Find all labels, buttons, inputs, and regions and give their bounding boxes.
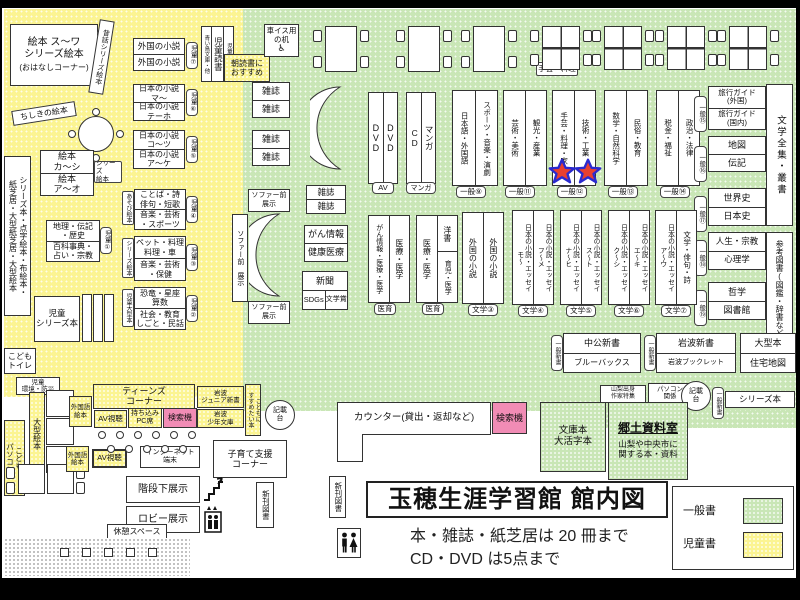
legend-row-general: 一般書 (683, 498, 783, 524)
seat-circle (179, 445, 187, 453)
shelf-badge: 児童⑦ (186, 42, 198, 69)
shelf-unit (104, 294, 114, 342)
foreign-novels-shelf: 外国の小説 外国の小説 (462, 212, 504, 304)
shelf-children-5: 日本の小説 コ〜ツ 日本の小説 ア〜ケ (133, 130, 185, 169)
shelf-label: 音楽・芸術 ・保健 (135, 258, 185, 280)
sofa-crescent (310, 84, 360, 174)
shelf-label: 絵本 ア〜オ (41, 173, 93, 196)
shelf-tag: シリーズ絵本 (122, 238, 134, 278)
stool (104, 548, 113, 557)
chair (508, 56, 517, 68)
shelf-badge: 一般⑨ (456, 186, 486, 198)
shelf-label: 日本の小説 テーホ (134, 102, 184, 120)
search-terminal: 検索機 (492, 402, 527, 434)
sdgs-row: SDGs文学賞 (303, 290, 347, 309)
legend: 一般書 児童書 (672, 486, 794, 570)
reading-table (473, 26, 505, 72)
japanese-novels-shelf-6: 日本の小説・エッセイ ク〜シ 日本の小説・エッセイ エ〜キ (608, 210, 650, 305)
childcare-support-corner: 子育て支援 コーナー (213, 440, 287, 478)
shelf-badge: 児童① (100, 227, 112, 254)
shelf-label: 民俗・教育 (626, 91, 648, 185)
chair (717, 54, 726, 66)
chair (530, 54, 539, 66)
service-counter-leg (337, 434, 363, 462)
shelf-badge: 児童⑤ (186, 136, 198, 163)
shelf-children-6: 日本の小説 マ〜 日本の小説 テーホ (133, 84, 185, 121)
wheelchair-desk-label: 車イス用 の机 (267, 27, 297, 44)
reading-table (325, 26, 357, 72)
search-terminal: 検索機 (163, 408, 197, 428)
rest-space-floor (4, 538, 190, 576)
av-seat: AV視聴 (94, 410, 127, 428)
shelf-label: 日本の小説・エッセイ ク〜シ (609, 211, 629, 304)
chair (76, 482, 85, 494)
shelf-label: 観光・産業 (525, 91, 547, 185)
shelf-subcolumn: 洋書 育児・医学 (437, 216, 458, 302)
magazine-label: 雑誌 (253, 83, 289, 100)
magazine-label: 雑誌 (253, 148, 289, 166)
magazine-rack: 雑誌 雑誌 (306, 185, 346, 214)
shelf-label: 中公新書 (564, 334, 640, 353)
magazine-rack: 雑誌 雑誌 (252, 130, 290, 166)
shelf-label: 文学・俳句・詩 (676, 211, 697, 304)
foreign-picture-books: 外国語 絵本 (66, 446, 89, 472)
shelf-badge: 児童⑥ (186, 89, 198, 116)
seat-circle (98, 431, 106, 439)
sdgs-label: SDGs (303, 291, 326, 309)
local-materials-room-desc: 山梨や中央市に 関する本・資料 (618, 440, 678, 460)
new-books-shelf: 新刊図書 (329, 476, 346, 518)
local-materials-room-title: 郷土資料室 (618, 422, 678, 436)
shelf-badge: 文学⑦ (661, 305, 691, 317)
magazine-label: 雑誌 (307, 199, 345, 213)
shelf-badge: 児童③ (186, 244, 198, 271)
shelf-label: がん情報・医療・医学 (369, 216, 389, 302)
sofa-front-display-strip: ソファー前 展示 (232, 214, 248, 302)
reading-table (604, 26, 642, 70)
shelf-label: 音楽・芸術 ・スポーツ (135, 209, 185, 229)
shelf-badge: 一般新書 (712, 387, 724, 419)
chair (396, 56, 405, 68)
bunko-large-print-shelf: 文庫本 大活字本 (540, 402, 606, 472)
shelf-children-7: 外国の小説 外国の小説 (133, 38, 185, 71)
shelf-label: 日本史 (709, 207, 765, 226)
shelf-tag: 児童大型本 (122, 289, 134, 327)
chair (655, 54, 664, 66)
shelf-label: ことば・詩 俳句・短歌 (135, 190, 185, 209)
elevator-icon (204, 504, 222, 534)
chair (708, 54, 717, 66)
chair (508, 30, 517, 42)
chair (360, 30, 369, 42)
cd-manga-shelf: CD マンガ (406, 92, 436, 184)
seat-circle (116, 431, 124, 439)
general-shelf-11: 芸術・美術 観光・産業 (503, 90, 547, 186)
shelf-children-3: ペット・料理 料理・車 音楽・芸術 ・保健 (134, 236, 186, 281)
shelf-badge: 児童④ (186, 196, 198, 223)
sofa-crescent (249, 210, 299, 302)
shelf-badge: 一般⑯ (694, 146, 707, 182)
chuko-shinsho-shelf: 中公新書 ブルーバックス (563, 333, 641, 373)
chair (396, 30, 405, 42)
shelf-label: ブルーバックス (564, 353, 640, 373)
legend-children-label: 児童書 (683, 538, 716, 551)
shelf-label: CD (407, 93, 421, 183)
stool (126, 548, 135, 557)
chair (717, 30, 726, 42)
chair (592, 54, 601, 66)
chair (708, 30, 717, 42)
shelf-label: 地図 (709, 137, 765, 154)
children-reading-label: 児童読書 (212, 27, 225, 81)
kids-toilet: こども トイレ (4, 348, 36, 374)
literary-award-label: 文学賞 (326, 291, 348, 309)
chair (645, 30, 654, 42)
shelf-label: 医療・医学 (389, 216, 410, 302)
medical-shelf-2: 医療・医学 洋書 育児・医学 (416, 215, 458, 303)
shelf-label: 伝記 (709, 154, 765, 172)
shelf-badge: AV (372, 182, 394, 194)
shelf-label: 図書館 (709, 301, 765, 320)
large-books-shelf: 大型本 住宅地図 (740, 333, 796, 373)
shelf-label: 日本の小説 コ〜ツ (134, 131, 184, 149)
shelf-label: DVD (369, 93, 383, 183)
map-biography-shelf: 地図 伝記 (708, 136, 766, 172)
reading-table (18, 464, 45, 494)
shelf-badge: 一般新書 (551, 335, 563, 371)
morning-reading-recommend-display: 朝読書に おすすめ (224, 54, 270, 82)
shelf-badge: 一般⑮ (694, 96, 707, 132)
seat-circle (170, 431, 178, 439)
chair (583, 30, 592, 42)
aoitori-bunko-label: 青い鳥文庫・他 (202, 27, 212, 81)
teens-corner: ティーンズ コーナー (93, 384, 195, 409)
under-stairs-display: 階段下展示 (126, 476, 200, 503)
series-braille-big-books-shelf: シリーズ本・点字絵本・布絵本・ 紙芝居・大型紙芝居・大型絵本 (4, 156, 31, 316)
shelf-label: 洋書 (438, 216, 458, 252)
shelf-badge: 医育 (374, 303, 396, 315)
newspaper-label: 新聞 (303, 272, 347, 290)
local-materials-room: 郷土資料室 山梨や中央市に 関する本・資料 (608, 402, 688, 480)
stairs-icon (202, 474, 224, 502)
chair (770, 30, 779, 42)
magazine-rack: 雑誌 雑誌 (252, 82, 290, 118)
chair (68, 130, 76, 138)
shelf-label: ペット・料理 料理・車 (135, 237, 185, 258)
shelf-label: がん情報 (305, 226, 347, 243)
chair (116, 130, 124, 138)
chair (313, 56, 322, 68)
byod-pc-seat: 持ち込み PC席 (128, 408, 162, 428)
map-title: 玉穂生涯学習館 館内図 (366, 481, 668, 518)
reading-table (667, 26, 705, 70)
philosophy-shelf: 哲学 図書館 (708, 282, 766, 320)
shelf-tag: シリーズ 絵本 (94, 161, 122, 183)
toilet-icon (339, 531, 359, 555)
shelf-label: 医療・医学 (417, 216, 437, 302)
shelf-label: 育児・医学 (438, 252, 458, 302)
shelf-label: 外国の小説 (134, 39, 184, 54)
shelf-label: 心理学 (709, 251, 765, 270)
seat-circle (188, 431, 196, 439)
cancer-info-health-shelf: がん情報 健康医療 (304, 225, 348, 262)
reading-table (542, 26, 580, 70)
shelf-label: 岩波ブックレット (657, 353, 735, 373)
medical-shelf-1: がん情報・医療・医学 医療・医学 (368, 215, 410, 303)
shelf-label: 日本の小説・エッセイ ナ〜ヒ (561, 211, 581, 304)
seat-circle (143, 445, 151, 453)
sofa-front-display: ソファー前 展示 (248, 189, 290, 212)
foreign-picture-books: 外国語 絵本 (69, 396, 92, 427)
seat-circle (161, 445, 169, 453)
shelf-label: 日本の小説・エッセイ ス〜ト (581, 211, 602, 304)
shelf-badge: 文学④ (518, 305, 548, 317)
picture-book-corner: 絵本 ス〜ワ シリーズ絵本 (おはなしコーナー) (10, 24, 98, 86)
map-canvas: 絵本 ス〜ワ シリーズ絵本 (おはなしコーナー) 昔話シリーズ絵本 ちしきの絵本… (2, 8, 796, 578)
seat-circle (107, 445, 115, 453)
legend-row-children: 児童書 (683, 532, 783, 558)
chair (313, 30, 322, 42)
wheelchair-icon: ♿ (277, 44, 285, 54)
shelf-label: 健康医療 (305, 243, 347, 261)
chair (360, 56, 369, 68)
sofa-front-display: ソファー前 展示 (248, 301, 290, 324)
shelf-label: 大型本 (741, 334, 795, 353)
shelf-label: 旅行ガイド (国内) (709, 108, 765, 130)
chair (461, 30, 470, 42)
shelf-label: 日本の小説・エッセイ ア〜ウ (656, 211, 676, 304)
chair (645, 54, 654, 66)
kids-recommended-books: こどもに すすめたい本 (245, 384, 261, 436)
shelf-unit (93, 294, 103, 342)
literature-collection-shelf: 文学全集・叢書 (766, 84, 793, 226)
chair (655, 30, 664, 42)
kids-round-table (78, 116, 114, 152)
shelf-label: 外国の小説 (483, 213, 504, 303)
chair (6, 467, 15, 479)
history-shelf: 世界史 日本史 (708, 188, 766, 226)
chair (92, 108, 100, 116)
shelf-unit (82, 294, 92, 342)
picture-books-shelf: 絵本 カ〜シ 絵本 ア〜オ (40, 150, 94, 196)
chair (461, 56, 470, 68)
shelf-label: 日本の小説・エッセイ エ〜キ (629, 211, 650, 304)
shelf-badge: 文学③ (468, 304, 498, 316)
chair (443, 56, 452, 68)
series-books-shelf: シリーズ本 (725, 391, 795, 408)
legend-general-label: 一般書 (683, 505, 716, 518)
shelf-label: 絵本 カ〜シ (41, 151, 93, 173)
stool (148, 548, 157, 557)
shelf-badge: 一般⑫ (557, 186, 587, 198)
loan-limit-note: 本・雑誌・紙芝居は 20 冊まで (410, 522, 629, 546)
shelf-badge: 一般⑪ (505, 186, 535, 198)
shelf-label: 人生・宗教 (709, 233, 765, 251)
shelf-label: 外国の小説 (463, 213, 483, 303)
rest-space-label: 休憩スペース (107, 524, 167, 539)
service-counter: カウンター(貸出・返却など) (337, 402, 491, 435)
shelf-label: 哲学 (709, 283, 765, 301)
seat-circle (152, 431, 160, 439)
shelf-label: 税金・福祉 (657, 91, 678, 185)
yamanashi-authors-display: 山梨出身 作家特集 (600, 385, 646, 403)
shelf-label: 住宅地図 (741, 353, 795, 373)
newspaper-shelf: 新聞 SDGs文学賞 (302, 271, 348, 310)
picture-book-range: 絵本 ス〜ワ シリーズ絵本 (24, 37, 84, 60)
general-shelf-9: 日本語・外国語 スポーツ・音楽・演劇 (452, 90, 498, 186)
japanese-novels-shelf-5: 日本の小説・エッセイ ナ〜ヒ 日本の小説・エッセイ ス〜ト (560, 210, 602, 305)
magazine-label: 雑誌 (307, 186, 345, 199)
shelf-badge: 文学⑤ (566, 305, 596, 317)
seat-circle (125, 445, 133, 453)
chair (530, 30, 539, 42)
iwanami-shinsho-shelf: 岩波新書 岩波ブックレット (656, 333, 736, 373)
iwanami-junior-shinsho-shelf: 岩波 ジュニア新書 (197, 386, 244, 408)
shelf-tag: あそび絵本 (122, 191, 134, 225)
shelf-badge: 文学⑥ (614, 305, 644, 317)
shelf-label: DVD (383, 93, 398, 183)
japanese-novels-shelf-7: 日本の小説・エッセイ ア〜ウ 文学・俳句・詩 (655, 210, 697, 305)
shelf-label: 地理・伝記 ・歴史 (47, 221, 99, 241)
magazine-label: 雑誌 (253, 100, 289, 118)
shelf-badge: 一般⑬ (608, 186, 638, 198)
shelf-label: 社会・教育 しごと・民話 (135, 308, 185, 329)
shelf-label: 日本の小説 ア〜ケ (134, 149, 184, 168)
av-limit-note: CD・DVD は5点まで (410, 545, 560, 569)
religion-psychology-shelf: 人生・宗教 心理学 (708, 232, 766, 270)
shelf-children-1: 地理・伝記 ・歴史 百科事典・ 占い・宗教 (46, 220, 100, 262)
travel-guide-shelf: 旅行ガイド (外国) 旅行ガイド (国内) (708, 86, 766, 130)
shelf-label: 日本の小説・エッセイ フ〜メ (533, 211, 554, 304)
shelf-label: 日本語・外国語 (453, 91, 475, 185)
shelf-label: 岩波新書 (657, 334, 735, 353)
shelf-badge: マンガ (406, 182, 436, 194)
japanese-novels-shelf-4: 日本の小説・エッセイ モ〜 日本の小説・エッセイ フ〜メ (512, 210, 554, 305)
shelf-label: 日本の小説・エッセイ モ〜 (513, 211, 533, 304)
toilet (337, 528, 361, 558)
shelf-badge: 一般新書 (644, 335, 656, 371)
writing-stand: 記載 台 (265, 400, 295, 430)
chair (583, 54, 592, 66)
shelf-badge: 医育 (422, 303, 444, 315)
shelf-children-2: 恐竜・星座 算数 社会・教育 しごと・民話 (134, 287, 186, 330)
iwanami-shonen-bunko-shelf: 岩波 少年文庫 (197, 409, 244, 428)
shelf-badge: 児童② (186, 295, 198, 322)
reading-table (408, 26, 440, 72)
seat-circle (134, 431, 142, 439)
chair (6, 482, 15, 494)
legend-children-swatch (743, 532, 783, 558)
shelf-label: マンガ (421, 93, 436, 183)
dvd-shelf: DVD DVD (368, 92, 398, 184)
shelf-children-4: ことば・詩 俳句・短歌 音楽・芸術 ・スポーツ (134, 189, 186, 230)
star-icon (574, 158, 602, 186)
wheelchair-desk: 車イス用 の机 ♿ (264, 24, 299, 57)
storytelling-corner-label: (おはなしコーナー) (19, 63, 88, 72)
children-series-books-shelf: 児童 シリーズ本 (34, 296, 80, 342)
magazine-label: 雑誌 (253, 131, 289, 148)
shelf-label: 旅行ガイド (外国) (709, 87, 765, 108)
shelf-label: 数学・自然科学 (605, 91, 626, 185)
new-books-shelf: 新刊図書 (256, 482, 274, 528)
shelf-label: 恐竜・星座 算数 (135, 288, 185, 308)
shelf-label: 世界史 (709, 189, 765, 207)
chair (443, 30, 452, 42)
legend-general-swatch (743, 498, 783, 524)
stool (60, 548, 69, 557)
shelf-label: 芸術・美術 (504, 91, 525, 185)
shelf-label: スポーツ・音楽・演劇 (475, 91, 498, 185)
chair (592, 30, 601, 42)
shelf-label: 百科事典・ 占い・宗教 (47, 241, 99, 262)
shelf-label: 日本の小説 マ〜 (134, 85, 184, 102)
shelf-label: 外国の小説 (134, 54, 184, 70)
stool (82, 548, 91, 557)
general-shelf-13: 数学・自然科学 民俗・教育 (604, 90, 648, 186)
reading-table (729, 26, 767, 70)
shelf-badge: 一般⑭ (660, 186, 690, 198)
chair (770, 54, 779, 66)
star-icon (548, 158, 576, 186)
library-floor-map: 絵本 ス〜ワ シリーズ絵本 (おはなしコーナー) 昔話シリーズ絵本 ちしきの絵本… (0, 0, 800, 600)
